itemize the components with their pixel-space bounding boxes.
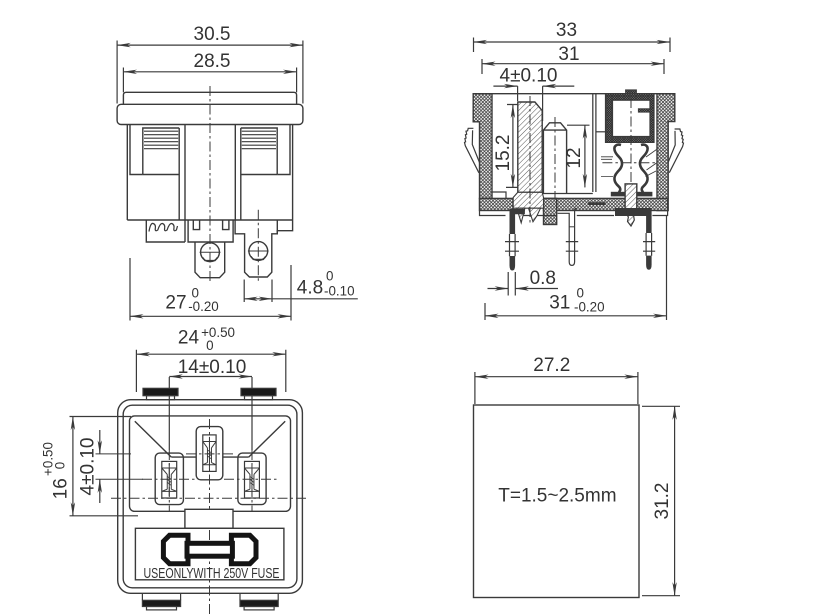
- svg-text:4±0.10: 4±0.10: [78, 438, 99, 496]
- svg-text:0: 0: [206, 338, 213, 353]
- svg-text:0: 0: [577, 286, 584, 301]
- svg-text:-0.20: -0.20: [188, 299, 219, 314]
- svg-text:31: 31: [558, 44, 579, 65]
- svg-text:24: 24: [178, 327, 200, 348]
- svg-text:15.2: 15.2: [493, 135, 514, 172]
- svg-text:0.8: 0.8: [530, 268, 556, 289]
- svg-text:T=1.5~2.5mm: T=1.5~2.5mm: [498, 486, 616, 507]
- svg-text:31: 31: [549, 293, 570, 314]
- svg-text:12: 12: [564, 147, 585, 168]
- svg-text:+0.50: +0.50: [41, 442, 56, 476]
- svg-text:14±0.10: 14±0.10: [178, 357, 247, 378]
- svg-text:33: 33: [556, 20, 577, 41]
- svg-text:30.5: 30.5: [194, 24, 231, 45]
- svg-text:USEONLYWITH 250V FUSE: USEONLYWITH 250V FUSE: [144, 566, 280, 582]
- svg-text:4±0.10: 4±0.10: [500, 66, 558, 87]
- svg-text:0: 0: [326, 269, 333, 284]
- svg-text:28.5: 28.5: [194, 51, 231, 72]
- svg-text:-0.20: -0.20: [574, 300, 605, 315]
- svg-text:-0.10: -0.10: [324, 284, 355, 299]
- svg-text:0: 0: [53, 462, 68, 469]
- svg-text:27: 27: [165, 293, 186, 314]
- svg-text:27.2: 27.2: [533, 355, 570, 376]
- svg-text:4.8: 4.8: [297, 278, 323, 299]
- svg-text:16: 16: [51, 478, 72, 499]
- svg-text:31.2: 31.2: [652, 483, 673, 520]
